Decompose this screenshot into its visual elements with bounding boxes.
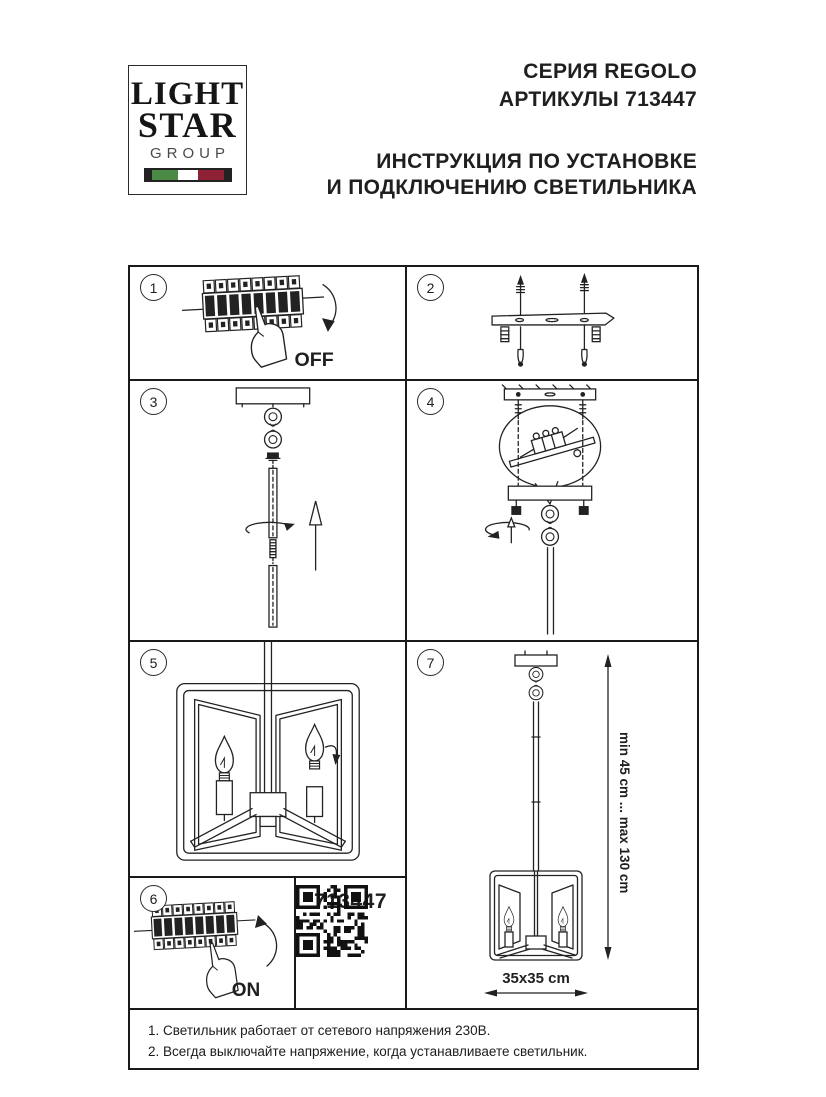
note-line-2: 2. Всегда выключайте напряжение, когда у… [148,1041,697,1062]
mounting-bracket [492,313,614,325]
step-3-number: 3 [140,388,167,415]
screw-in-arrow [326,746,341,765]
step-1-number: 1 [140,274,167,301]
flag-cap-left [144,170,152,180]
left-candle-bulb [504,907,514,947]
right-glass-panel [276,700,341,851]
off-label: OFF [295,349,334,371]
step-7-number: 7 [417,649,444,676]
circuit-breaker [181,274,326,332]
base-size-label: 35x35 cm [502,970,570,987]
panel-step-3: 3 [130,381,407,642]
chain-knot [529,667,543,699]
panel-step-1: 1 OFF [130,267,407,381]
right-candle-bulb-inserting [306,724,324,822]
instruction-title-line1: ИНСТРУКЦИЯ ПО УСТАНОВКЕ [327,149,697,175]
suspension-rod [548,548,554,634]
steps-grid: 1 OFF 2 [128,265,699,1070]
step-2-drawing-bracket [407,267,695,377]
step-4-drawing-wiring [407,381,695,638]
lightstar-logo: LIGHT STAR GROUP [128,65,247,195]
step-4-number: 4 [417,388,444,415]
lower-rod [269,558,277,627]
italian-flag-stripe [144,168,232,182]
logo-text-group: GROUP [129,145,246,162]
on-label: ON [232,980,261,1001]
threaded-joint [270,540,276,558]
instruction-sheet: LIGHT STAR GROUP СЕРИЯ REGOLO АРТИКУЛЫ 7… [0,0,826,1097]
step-5-drawing-bulb-install [130,642,405,874]
panel-step-5: 5 [130,642,407,878]
instruction-title-line2: И ПОДКЛЮЧЕНИЮ СВЕТИЛЬНИКА [327,175,697,201]
step-1-drawing-power-off: OFF [130,267,405,377]
panel-step-4: 4 [407,381,697,642]
threaded-stud-right [592,327,600,342]
up-arrow [310,501,322,570]
panel-step-7: 7 [407,642,697,1008]
step-6-number: 6 [140,885,167,912]
flag-white [178,170,198,180]
chain-knot [542,506,559,546]
height-range-label: min 45 cm ... max 130 cm [617,732,632,893]
width-dimension-arrow [484,990,588,997]
panel-step-6: 6 ON [130,878,296,1008]
panel-step-2: 2 [407,267,697,381]
ceiling-plate [502,385,595,400]
ceiling-screw-left [517,275,525,315]
ceiling-canopy [515,651,557,666]
article-title: АРТИКУЛЫ 713447 [327,86,697,114]
panel-article-qr: 713447 [296,878,407,1008]
suspension-rod [532,702,540,871]
wall-anchor-left [518,327,523,367]
height-dimension-arrow [605,654,612,960]
wall-anchor-right [582,325,587,367]
step-7-drawing-dimensions: min 45 cm ... max 130 cm 35x35 cm [407,642,695,1006]
turn-off-arrow [322,285,336,332]
right-candle-bulb [558,907,568,947]
left-candle-bulb [215,736,233,820]
step-5-number: 5 [140,649,167,676]
chain-knot [265,408,282,448]
logo-text-star: STAR [129,109,246,142]
collar-nut [266,452,280,460]
note-line-1: 1. Светильник работает от сетевого напря… [148,1020,697,1041]
upper-rod [269,460,277,537]
ceiling-screw-right [580,273,588,313]
suspension-rod [265,642,272,793]
flag-cap-right [224,170,232,180]
threaded-stud-left [501,327,509,342]
panel-notes: 1. Светильник работает от сетевого напря… [130,1008,697,1068]
flag-red [198,170,224,180]
qr-code [296,885,368,957]
rotation-arrow [486,518,530,543]
step-3-drawing-rod-assembly [130,381,405,638]
series-title: СЕРИЯ REGOLO [327,58,697,86]
header-titles: СЕРИЯ REGOLO АРТИКУЛЫ 713447 ИНСТРУКЦИЯ … [327,58,697,201]
step-2-number: 2 [417,274,444,301]
flag-green [152,170,178,180]
turn-on-arrow [255,915,277,966]
